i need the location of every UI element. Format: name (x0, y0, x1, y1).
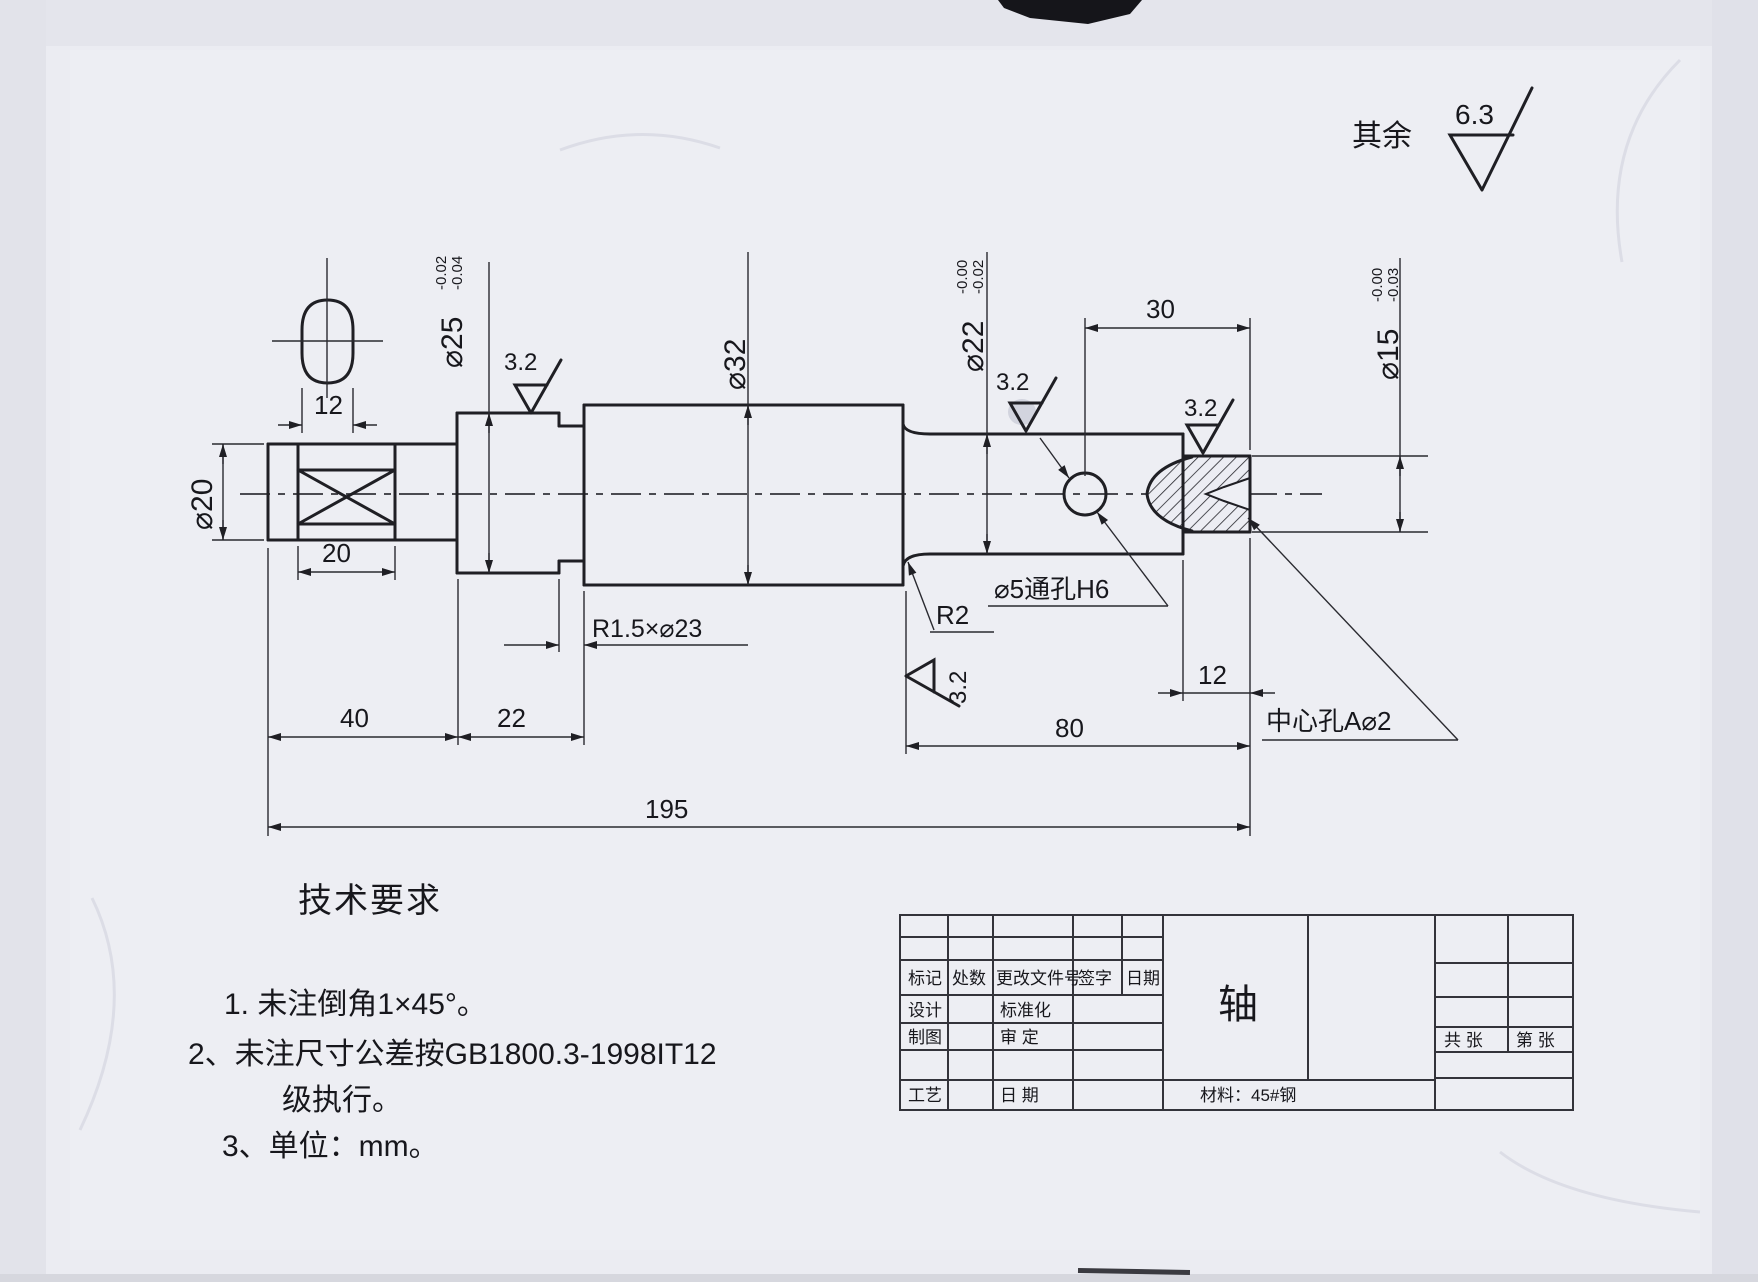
paper-background (0, 0, 1758, 1282)
tb-sheet-no: 第 张 (1516, 1031, 1555, 1050)
dim-seg3: 80 (1055, 713, 1084, 743)
tb-part-name: 轴 (1218, 983, 1258, 1027)
roughness-d25: 3.2 (504, 349, 537, 376)
tb-rev-sign: 签字 (1078, 969, 1112, 988)
dim-d22: ⌀22 (957, 321, 990, 372)
tech-req-title: 技术要求 (298, 882, 442, 920)
dim-d25: ⌀25 (436, 317, 469, 368)
dim-d20: ⌀20 (186, 479, 219, 530)
scanned-engineering-drawing: 其余 6.3 12 (0, 0, 1758, 1282)
tb-standardization: 标准化 (1000, 1001, 1051, 1020)
tb-draft: 制图 (908, 1028, 942, 1047)
dim-flat-length: 20 (322, 538, 351, 568)
tb-approve: 审 定 (1000, 1028, 1039, 1047)
dim-d15: ⌀15 (1372, 329, 1405, 380)
tb-rev-docno: 更改文件号 (996, 969, 1081, 988)
dim-d22-tol-lower: -0.02 (970, 260, 987, 294)
fillet-label: R2 (936, 600, 969, 630)
dim-d25-tol-lower: -0.04 (449, 256, 466, 290)
roughness-shoulder: 3.2 (945, 671, 972, 704)
roughness-d22: 3.2 (996, 369, 1029, 396)
dim-d15-tol-lower: -0.03 (1385, 268, 1402, 302)
tech-req-item2-cont: 级执行。 (282, 1084, 402, 1117)
tech-req-item1: 1. 未注倒角1×45°。 (224, 988, 487, 1021)
roughness-value-default: 6.3 (1455, 99, 1494, 130)
tb-process: 工艺 (908, 1086, 942, 1105)
dim-seg1: 40 (340, 703, 369, 733)
tb-material: 材料：45#钢 (1200, 1086, 1296, 1105)
dim-seg2: 22 (497, 703, 526, 733)
groove-label: R1.5×⌀23 (592, 615, 702, 643)
dim-d32: ⌀32 (719, 339, 752, 390)
qiyu-label: 其余 (1352, 120, 1412, 153)
dim-d15-tol-upper: -0.00 (1369, 268, 1386, 302)
tb-rev-count: 处数 (952, 969, 986, 988)
dim-end-length: 30 (1146, 294, 1175, 324)
dim-end-step: 12 (1198, 660, 1227, 690)
dim-d22-tol-upper: -0.00 (954, 260, 971, 294)
tb-total-sheets: 共 张 (1444, 1031, 1483, 1050)
tb-rev-date: 日期 (1126, 969, 1160, 988)
end-broken-out-section (1147, 457, 1250, 531)
center-hole-label: 中心孔A⌀2 (1266, 706, 1391, 736)
tb-design: 设计 (908, 1001, 942, 1020)
tb-rev-mark: 标记 (908, 969, 942, 988)
tech-req-item2: 2、未注尺寸公差按GB1800.3-1998IT12 (188, 1038, 717, 1071)
dim-total-length: 195 (645, 794, 688, 824)
dim-section-width: 12 (314, 390, 343, 420)
shaft-drawing-canvas: 其余 6.3 12 (0, 0, 1758, 1282)
tb-date: 日 期 (1000, 1086, 1039, 1105)
tech-req-item3: 3、单位：mm。 (222, 1130, 439, 1163)
roughness-d15: 3.2 (1184, 395, 1217, 422)
through-hole-label: ⌀5通孔H6 (994, 574, 1109, 604)
dim-d25-tol-upper: -0.02 (433, 256, 450, 290)
